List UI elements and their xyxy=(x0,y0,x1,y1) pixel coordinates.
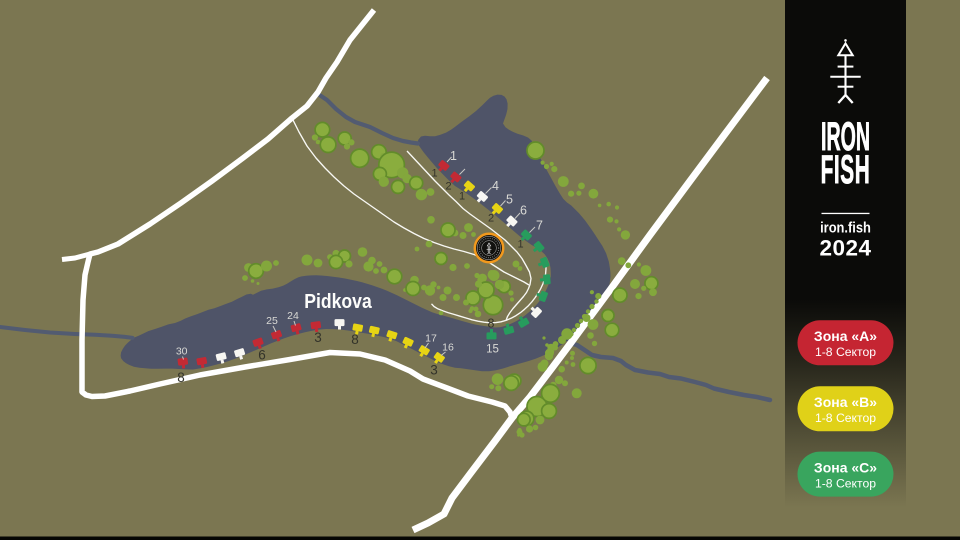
svg-text:15: 15 xyxy=(486,344,499,356)
svg-text:2: 2 xyxy=(488,213,494,225)
svg-text:2024: 2024 xyxy=(819,236,871,261)
svg-text:1: 1 xyxy=(450,149,457,163)
svg-text:8: 8 xyxy=(351,332,359,347)
svg-text:16: 16 xyxy=(442,342,454,354)
svg-text:3: 3 xyxy=(430,363,438,378)
svg-text:Зона «B»: Зона «B» xyxy=(814,394,877,410)
svg-text:3: 3 xyxy=(314,330,322,345)
svg-text:8: 8 xyxy=(488,317,495,331)
svg-text:1-8 Сектор: 1-8 Сектор xyxy=(815,411,876,425)
svg-text:1-8 Сектор: 1-8 Сектор xyxy=(815,476,876,490)
svg-text:30: 30 xyxy=(176,346,188,358)
svg-text:Зона «С»: Зона «С» xyxy=(814,459,877,475)
svg-text:2: 2 xyxy=(445,181,451,193)
svg-text:25: 25 xyxy=(266,315,278,327)
svg-text:FISH: FISH xyxy=(821,147,871,192)
svg-text:8: 8 xyxy=(177,370,185,385)
svg-text:Зона «А»: Зона «А» xyxy=(814,328,877,344)
svg-text:1: 1 xyxy=(517,239,523,251)
svg-text:6: 6 xyxy=(520,204,527,218)
svg-text:Pidkova: Pidkova xyxy=(304,290,372,312)
svg-text:5: 5 xyxy=(506,193,513,207)
svg-text:iron.fish: iron.fish xyxy=(820,219,871,236)
svg-text:24: 24 xyxy=(287,310,299,322)
svg-text:7: 7 xyxy=(536,219,543,233)
svg-text:17: 17 xyxy=(425,333,437,345)
svg-text:4: 4 xyxy=(492,179,499,193)
svg-text:6: 6 xyxy=(258,348,266,363)
svg-text:1-8 Сектор: 1-8 Сектор xyxy=(815,345,876,359)
svg-text:1: 1 xyxy=(459,191,465,203)
svg-text:1: 1 xyxy=(431,168,437,180)
